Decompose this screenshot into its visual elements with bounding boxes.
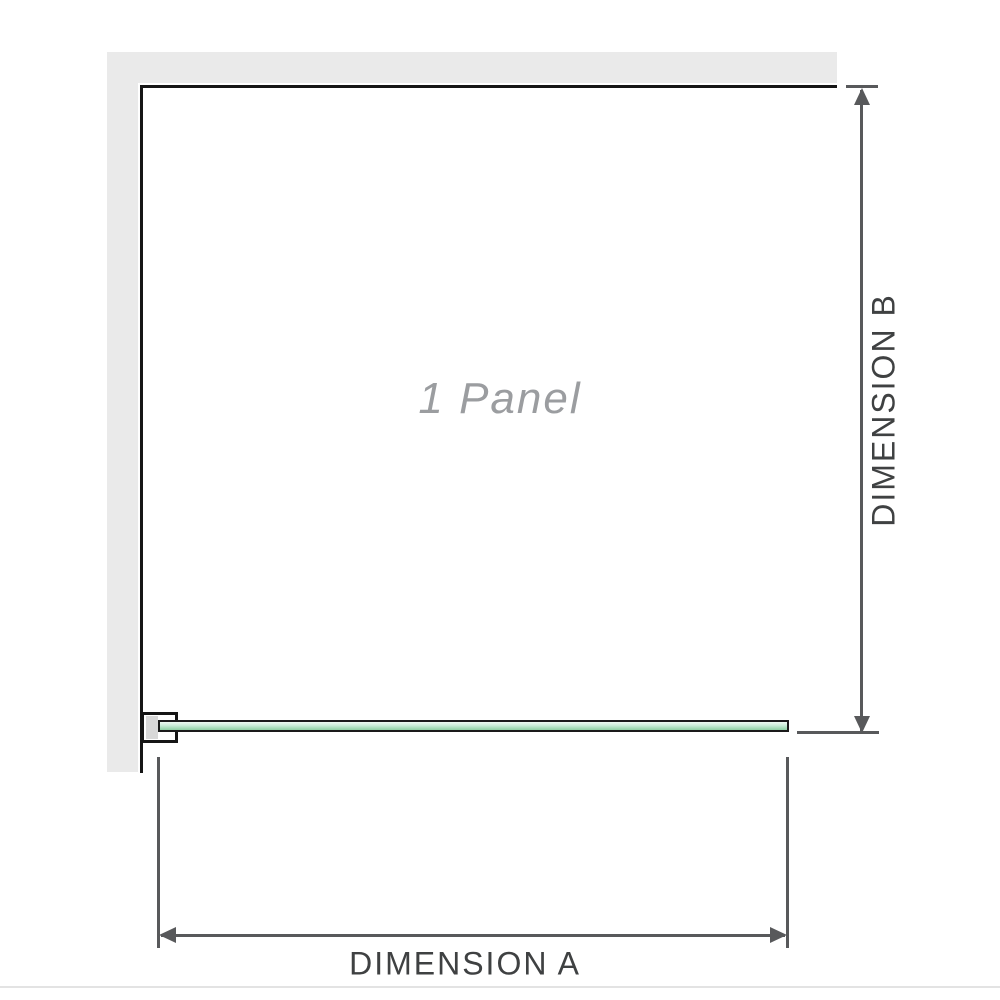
wall-top-strip: [107, 52, 837, 83]
arrow-up-icon: [854, 88, 870, 105]
dimension-a-right-tick: [786, 757, 789, 948]
panel-left-border: [140, 85, 143, 773]
bottom-separator-line: [0, 986, 1000, 988]
dimension-a-left-tick: [157, 757, 160, 948]
dimension-a-label: DIMENSION A: [349, 946, 581, 983]
dimension-diagram-canvas: 1 Panel DIMENSION B DIMENSION A: [0, 0, 1000, 1000]
arrow-down-icon: [854, 716, 870, 733]
wall-bracket-block: [146, 716, 158, 739]
arrow-right-icon: [770, 927, 787, 943]
wall-left-strip: [107, 52, 138, 772]
panel-count-label: 1 Panel: [418, 374, 581, 424]
dimension-a-line: [161, 934, 785, 937]
arrow-left-icon: [159, 927, 176, 943]
dimension-b-line: [860, 90, 863, 733]
dimension-b-label: DIMENSION B: [866, 293, 903, 527]
glass-panel-bar: [158, 720, 789, 732]
panel-top-border: [140, 85, 837, 88]
